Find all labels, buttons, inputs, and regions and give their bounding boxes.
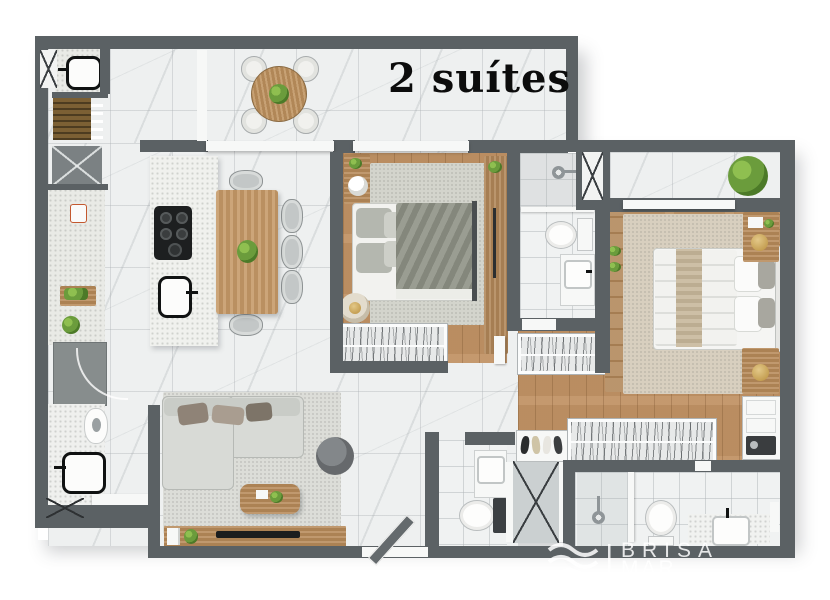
page-title: 2 suítes — [388, 55, 571, 102]
dining-chair — [229, 170, 263, 192]
wall-wc-left — [425, 432, 439, 546]
wall-left-lower — [148, 405, 160, 546]
grate-slats — [91, 101, 103, 139]
bath2-shower-area — [577, 472, 627, 546]
coffee-table-decor — [256, 490, 268, 499]
burner-center — [168, 243, 182, 257]
bath1-door — [522, 319, 556, 330]
wardrobe-plant — [488, 161, 502, 173]
balcony-glass-partition — [197, 50, 207, 141]
wall-bath1-left — [507, 152, 520, 331]
laundry-sink — [66, 56, 102, 90]
bath2-glass-screen — [628, 472, 634, 542]
wall-window-band — [140, 140, 208, 152]
bath1-shower-arm — [563, 170, 577, 173]
wall-suite1-bottom — [330, 361, 448, 373]
wall-left — [35, 36, 48, 518]
balcony-table-plant — [269, 84, 289, 104]
suite2-accent-pillow — [758, 298, 775, 328]
bath1-faucet — [586, 270, 592, 273]
wall-suite2-entry — [595, 331, 610, 373]
suite2-accent-pillow — [758, 259, 775, 289]
wc2-toilet-bowl — [459, 500, 495, 531]
burner — [176, 228, 188, 240]
burner — [176, 212, 188, 224]
suite1-nightstand-plant — [349, 158, 362, 169]
round-pouf — [316, 437, 354, 475]
center-shaft-x — [513, 461, 559, 543]
shaft-divider — [48, 184, 108, 190]
burner — [160, 212, 172, 224]
bath1-toilet-tank — [577, 218, 593, 251]
nightstand-tray — [752, 364, 769, 381]
suite1-hanger-wardrobe — [337, 324, 447, 366]
wall-suite1-left — [330, 152, 343, 363]
wc2-toilet-tank — [493, 498, 507, 533]
candle — [349, 302, 361, 314]
dining-chair — [281, 235, 303, 269]
nightstand-decor — [748, 217, 763, 228]
bath1-shaft-x — [582, 152, 603, 200]
tv — [216, 531, 300, 538]
living-sliding-door — [206, 141, 334, 151]
console-books — [167, 528, 180, 545]
coffee-table-plant — [270, 491, 283, 503]
wardrobe-shelf-divider — [571, 441, 713, 443]
left-wall-shaft-x — [40, 50, 57, 88]
nightstand-tray — [751, 234, 768, 251]
wardrobe-handle — [493, 208, 496, 278]
suite1-tall-wardrobe — [484, 156, 508, 354]
mug — [70, 204, 87, 223]
wc-toilet-bowl — [92, 418, 101, 432]
throw-pillow — [245, 402, 272, 422]
wall-bath2-left — [563, 460, 575, 546]
wc2-basin — [477, 456, 505, 484]
laundry-faucet — [58, 68, 68, 71]
suite1-sheet-fold — [396, 289, 474, 299]
bath2-toilet-bowl — [645, 500, 677, 536]
burner — [160, 228, 172, 240]
wall-top — [35, 36, 578, 49]
wall-wc-top — [465, 432, 515, 445]
suite1-footboard — [472, 201, 477, 301]
island-sink — [158, 276, 192, 318]
wc-faucet — [54, 466, 66, 469]
suite2-window — [623, 200, 735, 209]
bath2-door — [695, 461, 711, 471]
wall-right — [780, 140, 795, 546]
island-faucet — [186, 291, 198, 294]
throw-pillow — [177, 402, 209, 426]
bath2-faucet — [726, 508, 729, 518]
bath2-towel — [770, 502, 779, 532]
nightstand-plant — [764, 219, 774, 228]
dresser-drawer — [746, 400, 776, 415]
wc-black-sink — [62, 452, 106, 494]
bath2-shower-arm — [597, 496, 600, 512]
dining-chair — [229, 314, 263, 336]
shaft-side-panel — [506, 462, 513, 542]
herb-plant — [62, 316, 80, 334]
laundry-divider-v — [100, 48, 110, 94]
wardrobe-shelf-divider — [340, 345, 444, 347]
bath1-toilet-bowl — [545, 221, 577, 249]
drying-grate — [53, 96, 91, 140]
suite2-bed-runner — [676, 249, 702, 347]
suite1-table-lamp — [348, 176, 368, 196]
watermark-line2: MAR IMÓVEIS — [621, 559, 730, 597]
bath2-shower-head — [592, 511, 605, 524]
throw-pillow — [211, 404, 245, 425]
tray-item — [750, 441, 758, 449]
suite1-window — [353, 141, 469, 151]
bottom-left-shaft-x — [46, 498, 84, 518]
dining-chair — [281, 199, 303, 233]
suite2-hanger-wardrobe — [568, 419, 716, 463]
dining-table-plant — [237, 240, 258, 263]
wall-bath2-top — [563, 460, 782, 472]
bath1-basin — [564, 260, 592, 289]
dining-chair — [281, 270, 303, 304]
suite2-balcony-plant — [728, 156, 768, 196]
cutting-board-herbs — [64, 288, 88, 300]
suite1-duvet — [396, 203, 474, 299]
dresser-drawer — [746, 418, 776, 433]
console-plant — [184, 529, 198, 544]
floorplan-image: 2 suítes BRISA MAR IMÓVEIS — [0, 0, 830, 600]
suite1-door-leaf — [494, 336, 505, 364]
laundry-shaft-x — [52, 146, 102, 186]
